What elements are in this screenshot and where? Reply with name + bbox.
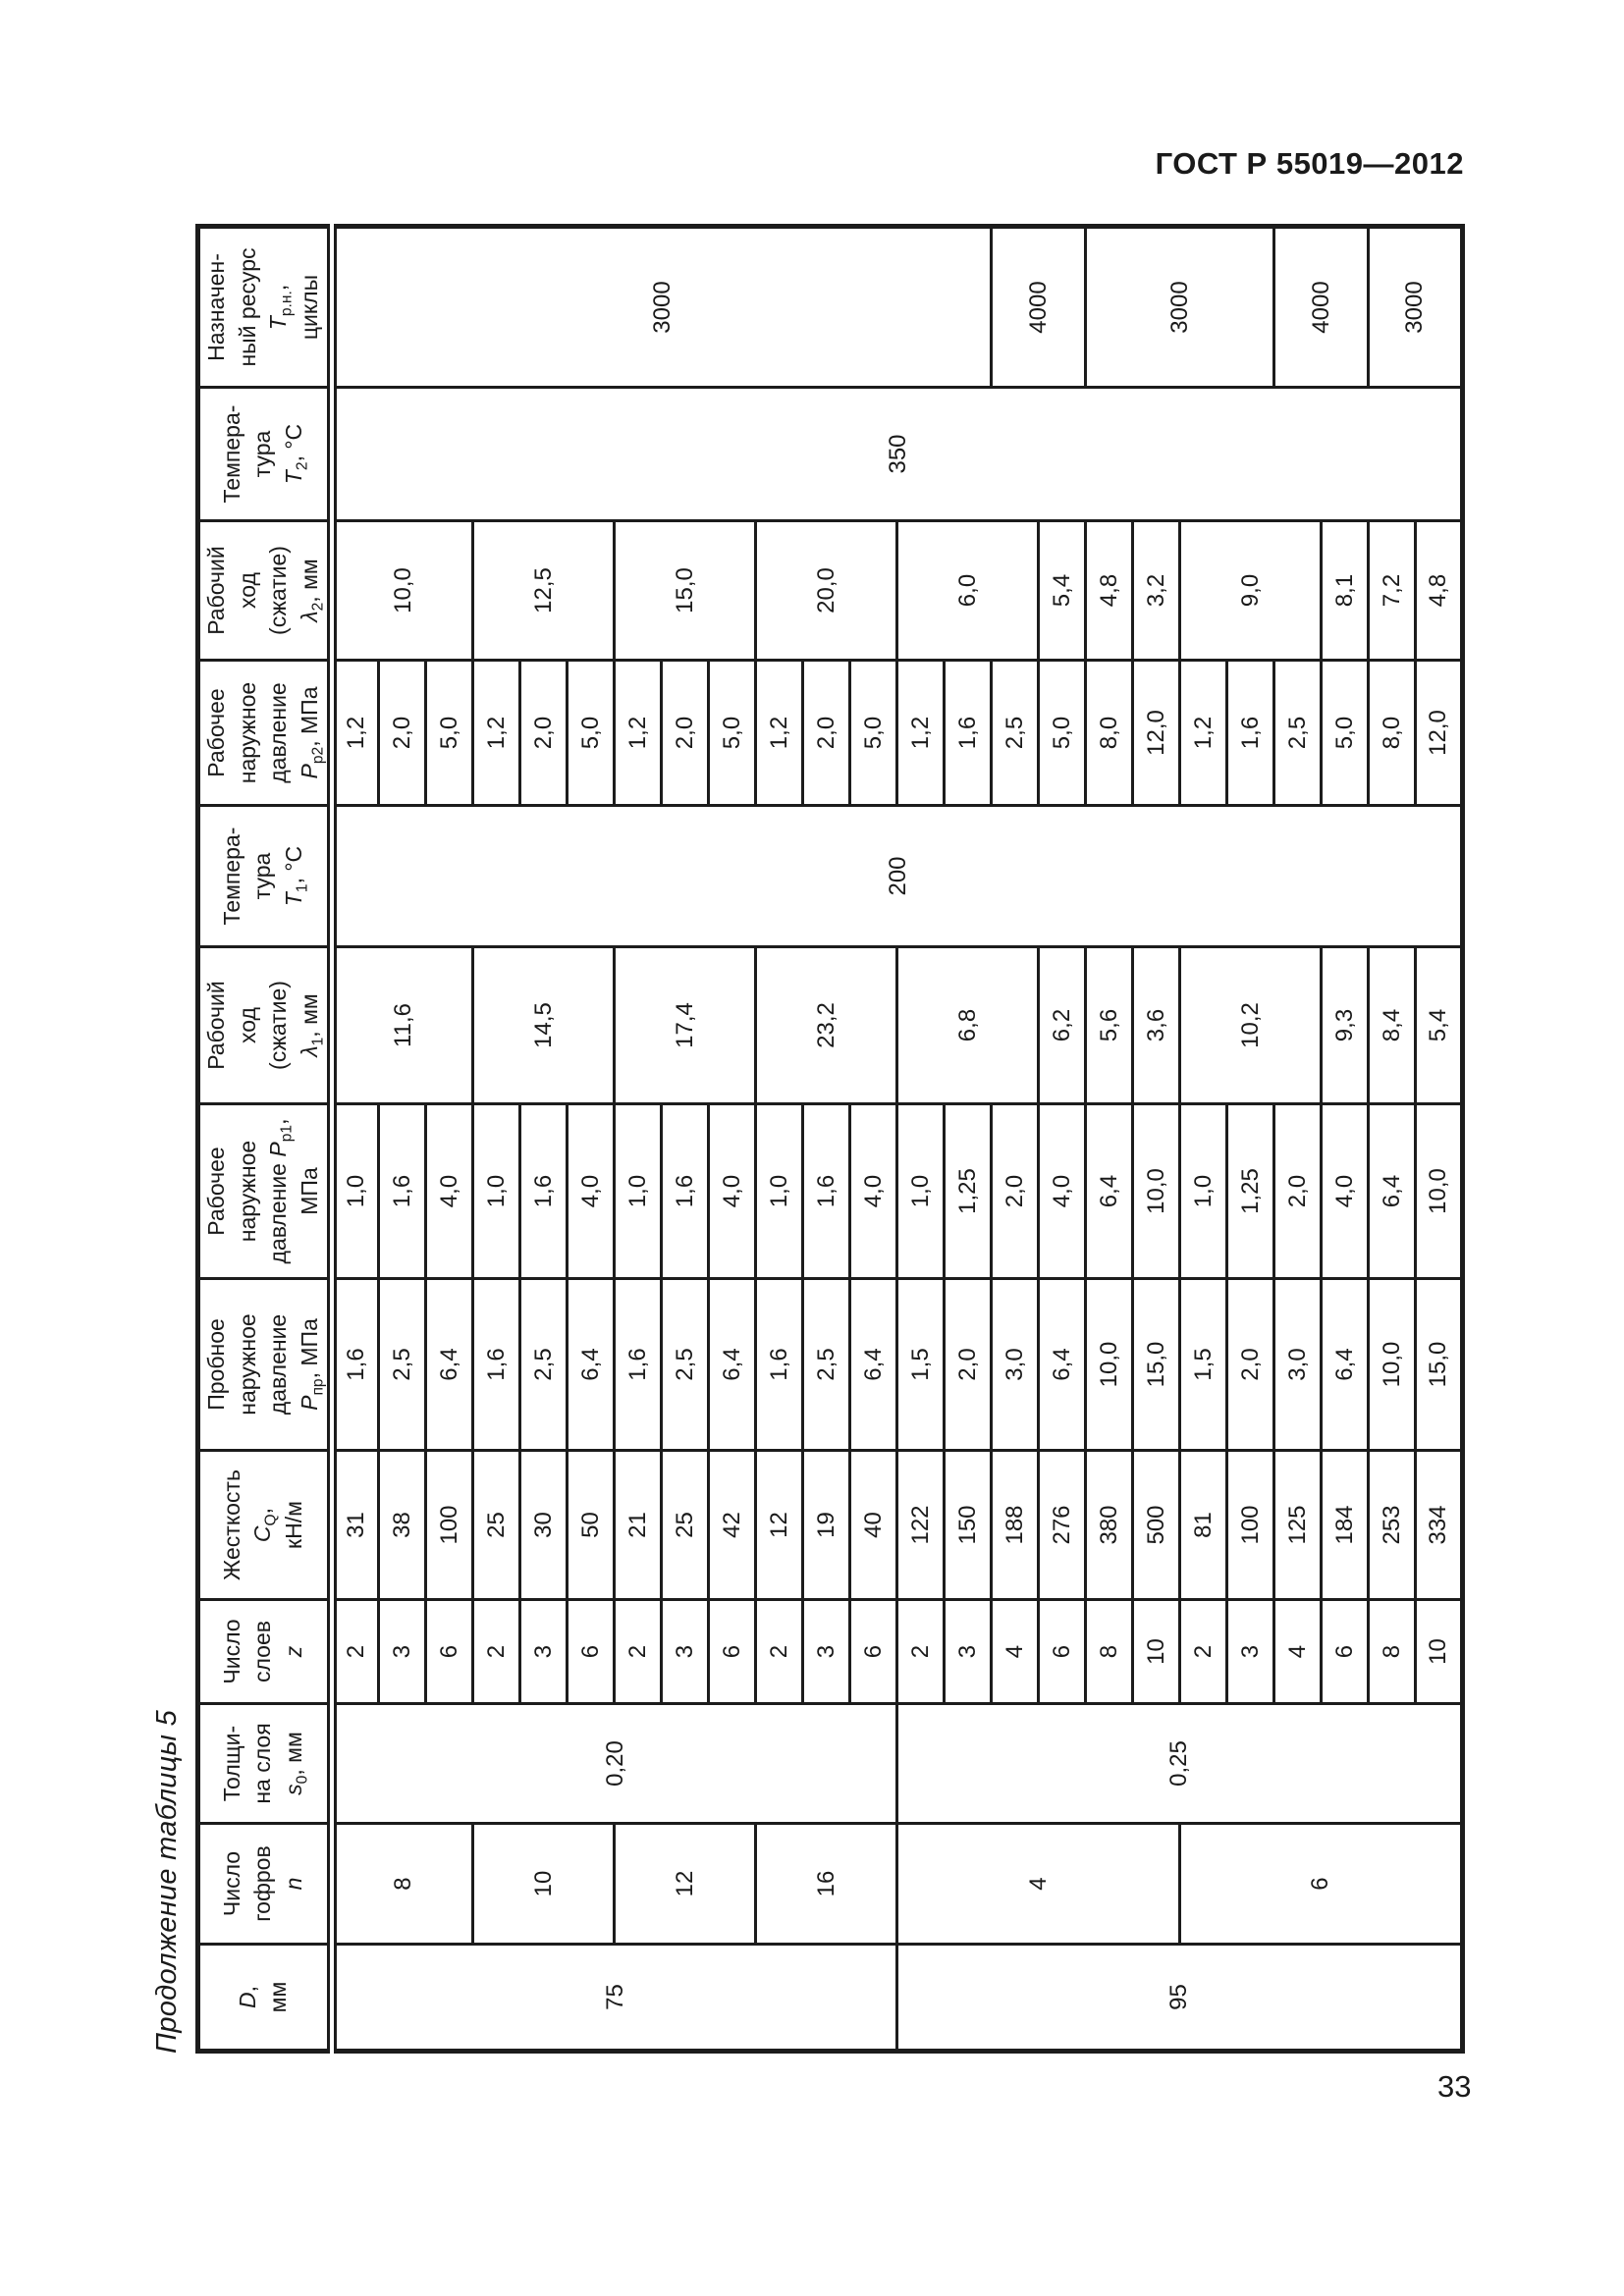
table-cell-p_p1: 1,0 (615, 1104, 662, 1279)
table-cell-p_pr: 6,4 (850, 1279, 897, 1451)
table-cell-lambda2: 6,0 (897, 521, 1039, 661)
table-cell-p_p2: 8,0 (1086, 661, 1133, 806)
table-cell-p_p2: 1,2 (332, 661, 379, 806)
table-caption: Продолжение таблицы 5 (144, 1681, 189, 2054)
table-cell-p_pr: 6,4 (1039, 1279, 1086, 1451)
table-cell-z: 2 (897, 1600, 945, 1704)
table-cell-z: 6 (568, 1600, 615, 1704)
table-cell-p_p1: 4,0 (1039, 1104, 1086, 1279)
table-cell-lambda2: 4,8 (1416, 521, 1463, 661)
table-cell-n: 12 (615, 1824, 756, 1945)
table-cell-p_p1: 4,0 (1322, 1104, 1369, 1279)
table-cell-c: 184 (1322, 1451, 1369, 1600)
page-number: 33 (1437, 2069, 1471, 2105)
table-cell-z: 3 (662, 1600, 709, 1704)
table-cell-p_p2: 8,0 (1369, 661, 1416, 806)
table-5-continuation: D,ммЧислогофровnТолщи-на слояs0, ммЧисло… (195, 229, 1460, 2054)
table-cell-c: 21 (615, 1451, 662, 1600)
table-caption-text: Продолжение таблицы 5 (144, 1681, 189, 2054)
column-header-d: D,мм (198, 1945, 332, 2052)
table-cell-z: 2 (473, 1600, 520, 1704)
table-cell-p_p2: 1,6 (1227, 661, 1274, 806)
table-cell-lambda2: 15,0 (615, 521, 756, 661)
rotated-table-container: D,ммЧислогофровnТолщи-на слояs0, ммЧисло… (195, 229, 1460, 2054)
table-cell-lambda2: 5,4 (1039, 521, 1086, 661)
table-cell-p_pr: 3,0 (1274, 1279, 1322, 1451)
table-cell-lambda2: 7,2 (1369, 521, 1416, 661)
table-cell-p_p2: 5,0 (1322, 661, 1369, 806)
table-cell-lambda2: 3,2 (1133, 521, 1180, 661)
table-cell-lambda2: 9,0 (1180, 521, 1322, 661)
table-cell-z: 3 (520, 1600, 568, 1704)
table-cell-p_p2: 2,0 (379, 661, 426, 806)
table-cell-p_p1: 6,4 (1369, 1104, 1416, 1279)
table-cell-resource: 4000 (1274, 227, 1369, 388)
table-cell-p_p2: 1,2 (1180, 661, 1227, 806)
table-cell-p_p1: 10,0 (1133, 1104, 1180, 1279)
table-cell-p_p1: 1,6 (803, 1104, 850, 1279)
table-cell-p_p1: 1,0 (473, 1104, 520, 1279)
column-header-n: Числогофровn (198, 1824, 332, 1945)
table-cell-p_pr: 6,4 (568, 1279, 615, 1451)
table-cell-p_p1: 2,0 (1274, 1104, 1322, 1279)
table-cell-z: 6 (709, 1600, 756, 1704)
table-cell-z: 2 (756, 1600, 803, 1704)
table-cell-p_p1: 1,25 (1227, 1104, 1274, 1279)
table-cell-lambda2: 20,0 (756, 521, 897, 661)
table-cell-c: 40 (850, 1451, 897, 1600)
table-cell-lambda1: 11,6 (332, 947, 473, 1104)
table-cell-resource: 4000 (992, 227, 1086, 388)
table-cell-p_pr: 1,6 (756, 1279, 803, 1451)
table-cell-p_p2: 2,0 (803, 661, 850, 806)
column-header-p_pr: ПробноенаружноедавлениеPпр, МПа (198, 1279, 332, 1451)
table-cell-p_p2: 2,0 (520, 661, 568, 806)
table-cell-lambda1: 9,3 (1322, 947, 1369, 1104)
table-cell-z: 3 (945, 1600, 992, 1704)
table-cell-p_p1: 4,0 (709, 1104, 756, 1279)
table-cell-c: 19 (803, 1451, 850, 1600)
table-cell-t2: 350 (332, 388, 1463, 521)
table-cell-c: 30 (520, 1451, 568, 1600)
table-cell-lambda1: 3,6 (1133, 947, 1180, 1104)
table-cell-z: 3 (803, 1600, 850, 1704)
table-cell-c: 81 (1180, 1451, 1227, 1600)
column-header-lambda1: Рабочийход(сжатие)λ1, мм (198, 947, 332, 1104)
table-cell-resource: 3000 (1369, 227, 1463, 388)
table-cell-lambda1: 6,2 (1039, 947, 1086, 1104)
table-cell-c: 31 (332, 1451, 379, 1600)
table-cell-p_p2: 2,5 (992, 661, 1039, 806)
column-header-p_p1: Рабочеенаружноедавление Pр1,МПа (198, 1104, 332, 1279)
table-cell-d: 95 (897, 1945, 1463, 2052)
table-cell-p_pr: 10,0 (1086, 1279, 1133, 1451)
column-header-p_p2: РабочеенаружноедавлениеPр2, МПа (198, 661, 332, 806)
table-cell-p_pr: 15,0 (1133, 1279, 1180, 1451)
table-cell-p_pr: 2,0 (945, 1279, 992, 1451)
table-cell-z: 6 (426, 1600, 473, 1704)
table-cell-p_p2: 1,2 (756, 661, 803, 806)
table-cell-lambda2: 12,5 (473, 521, 615, 661)
table-cell-p_pr: 1,6 (332, 1279, 379, 1451)
table-cell-p_pr: 1,6 (473, 1279, 520, 1451)
table-cell-c: 150 (945, 1451, 992, 1600)
table-cell-z: 10 (1416, 1600, 1463, 1704)
table-cell-c: 122 (897, 1451, 945, 1600)
table-cell-lambda1: 14,5 (473, 947, 615, 1104)
table-cell-c: 50 (568, 1451, 615, 1600)
column-header-z: Числослоевz (198, 1600, 332, 1704)
table-cell-p_pr: 2,5 (803, 1279, 850, 1451)
table-cell-n: 16 (756, 1824, 897, 1945)
table-cell-z: 6 (1322, 1600, 1369, 1704)
table-cell-c: 380 (1086, 1451, 1133, 1600)
table-cell-p_pr: 1,5 (1180, 1279, 1227, 1451)
table-cell-s0: 0,25 (897, 1704, 1463, 1824)
column-header-s0: Толщи-на слояs0, мм (198, 1704, 332, 1824)
table-cell-c: 25 (473, 1451, 520, 1600)
table-cell-p_p2: 2,0 (662, 661, 709, 806)
table-cell-z: 6 (850, 1600, 897, 1704)
table-cell-p_pr: 1,6 (615, 1279, 662, 1451)
table-cell-lambda2: 4,8 (1086, 521, 1133, 661)
table-cell-c: 253 (1369, 1451, 1416, 1600)
column-header-c: ЖесткостьCQ,кН/м (198, 1451, 332, 1600)
table-cell-p_p2: 1,2 (897, 661, 945, 806)
table-cell-t1: 200 (332, 806, 1463, 947)
column-header-t2: Темпера-тураT2, °С (198, 388, 332, 521)
table-cell-z: 4 (992, 1600, 1039, 1704)
table-cell-p_p1: 1,0 (897, 1104, 945, 1279)
table-cell-z: 3 (379, 1600, 426, 1704)
table-cell-p_pr: 10,0 (1369, 1279, 1416, 1451)
table-cell-p_p1: 6,4 (1086, 1104, 1133, 1279)
table-cell-c: 276 (1039, 1451, 1086, 1600)
table-cell-p_p2: 5,0 (709, 661, 756, 806)
table-cell-p_pr: 3,0 (992, 1279, 1039, 1451)
table-cell-p_pr: 15,0 (1416, 1279, 1463, 1451)
table-cell-p_p1: 4,0 (426, 1104, 473, 1279)
table-cell-c: 125 (1274, 1451, 1322, 1600)
table-cell-lambda1: 17,4 (615, 947, 756, 1104)
table-cell-z: 2 (332, 1600, 379, 1704)
table-cell-lambda1: 23,2 (756, 947, 897, 1104)
table-cell-z: 10 (1133, 1600, 1180, 1704)
bellows-parameters-table: D,ммЧислогофровnТолщи-на слояs0, ммЧисло… (195, 224, 1465, 2054)
table-cell-p_pr: 1,5 (897, 1279, 945, 1451)
column-header-t1: Темпера-тураT1, °С (198, 806, 332, 947)
table-cell-p_pr: 6,4 (1322, 1279, 1369, 1451)
table-cell-c: 38 (379, 1451, 426, 1600)
table-cell-p_p1: 10,0 (1416, 1104, 1463, 1279)
table-cell-c: 12 (756, 1451, 803, 1600)
table-cell-z: 6 (1039, 1600, 1086, 1704)
table-cell-lambda1: 5,4 (1416, 947, 1463, 1104)
table-cell-lambda1: 8,4 (1369, 947, 1416, 1104)
table-cell-p_p1: 1,6 (662, 1104, 709, 1279)
table-cell-p_p2: 5,0 (426, 661, 473, 806)
column-header-lambda2: Рабочийход(сжатие)λ2, мм (198, 521, 332, 661)
column-header-resource: Назначен-ный ресурсTр.н.,циклы (198, 227, 332, 388)
table-cell-n: 10 (473, 1824, 615, 1945)
table-cell-p_p1: 1,6 (520, 1104, 568, 1279)
table-cell-p_p1: 1,25 (945, 1104, 992, 1279)
table-cell-p_p2: 1,6 (945, 661, 992, 806)
table-cell-p_p1: 1,0 (332, 1104, 379, 1279)
table-cell-z: 2 (1180, 1600, 1227, 1704)
table-cell-lambda1: 10,2 (1180, 947, 1322, 1104)
table-cell-p_p1: 4,0 (568, 1104, 615, 1279)
table-cell-p_p1: 1,0 (1180, 1104, 1227, 1279)
table-cell-lambda1: 6,8 (897, 947, 1039, 1104)
table-cell-resource: 3000 (1086, 227, 1274, 388)
document-number-header: ГОСТ Р 55019—2012 (1156, 146, 1464, 182)
table-cell-d: 75 (332, 1945, 897, 2052)
table-cell-c: 500 (1133, 1451, 1180, 1600)
table-cell-p_pr: 2,5 (520, 1279, 568, 1451)
document-page: ГОСТ Р 55019—2012 Продолжение таблицы 5 … (0, 0, 1624, 2296)
table-cell-s0: 0,20 (332, 1704, 897, 1824)
table-cell-lambda2: 8,1 (1322, 521, 1369, 661)
table-cell-p_pr: 2,5 (379, 1279, 426, 1451)
table-cell-lambda2: 10,0 (332, 521, 473, 661)
table-cell-n: 8 (332, 1824, 473, 1945)
table-cell-p_p1: 1,6 (379, 1104, 426, 1279)
table-cell-lambda1: 5,6 (1086, 947, 1133, 1104)
table-cell-p_p2: 12,0 (1416, 661, 1463, 806)
table-cell-c: 100 (426, 1451, 473, 1600)
table-cell-c: 188 (992, 1451, 1039, 1600)
table-cell-c: 25 (662, 1451, 709, 1600)
table-cell-p_pr: 6,4 (426, 1279, 473, 1451)
table-cell-c: 42 (709, 1451, 756, 1600)
table-cell-z: 2 (615, 1600, 662, 1704)
table-cell-p_p1: 1,0 (756, 1104, 803, 1279)
table-cell-p_p2: 5,0 (850, 661, 897, 806)
table-cell-p_p2: 1,2 (615, 661, 662, 806)
table-cell-z: 4 (1274, 1600, 1322, 1704)
table-cell-c: 100 (1227, 1451, 1274, 1600)
table-cell-p_p2: 5,0 (1039, 661, 1086, 806)
table-cell-p_p2: 2,5 (1274, 661, 1322, 806)
table-cell-z: 8 (1369, 1600, 1416, 1704)
table-cell-p_pr: 2,5 (662, 1279, 709, 1451)
table-cell-p_p2: 12,0 (1133, 661, 1180, 806)
table-cell-n: 6 (1180, 1824, 1463, 1945)
table-cell-c: 334 (1416, 1451, 1463, 1600)
table-cell-p_pr: 2,0 (1227, 1279, 1274, 1451)
table-cell-resource: 3000 (332, 227, 992, 388)
table-cell-z: 3 (1227, 1600, 1274, 1704)
table-cell-z: 8 (1086, 1600, 1133, 1704)
table-cell-p_p2: 5,0 (568, 661, 615, 806)
table-cell-p_p1: 4,0 (850, 1104, 897, 1279)
table-cell-p_pr: 6,4 (709, 1279, 756, 1451)
table-cell-p_p1: 2,0 (992, 1104, 1039, 1279)
table-cell-n: 4 (897, 1824, 1180, 1945)
table-cell-p_p2: 1,2 (473, 661, 520, 806)
